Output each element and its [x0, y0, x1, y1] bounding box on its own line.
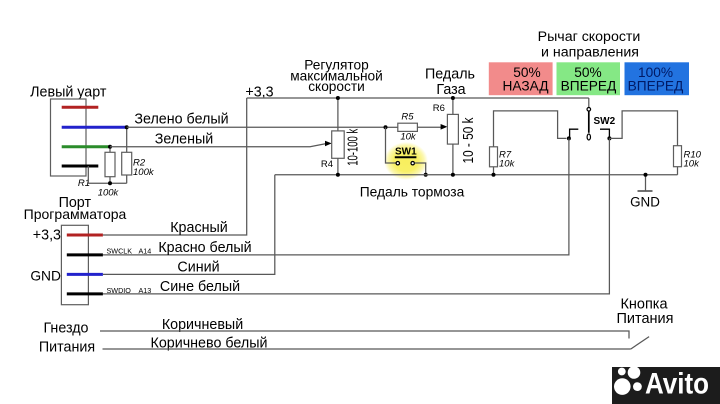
svg-text:Программатора: Программатора [24, 206, 127, 222]
svg-text:Газа: Газа [436, 82, 465, 98]
svg-text:SW2: SW2 [594, 116, 616, 127]
svg-text:GND: GND [30, 268, 61, 283]
svg-text:R4: R4 [321, 159, 333, 170]
svg-text:Зелено белый: Зелено белый [134, 112, 228, 128]
svg-text:Рычаг скорости: Рычаг скорости [538, 29, 641, 45]
svg-text:R5: R5 [401, 112, 414, 123]
svg-text:Питания: Питания [39, 340, 95, 356]
svg-text:ВПЕРЕД: ВПЕРЕД [561, 79, 617, 94]
svg-text:Avito: Avito [645, 368, 709, 401]
svg-text:скорости: скорости [308, 79, 365, 94]
svg-text:10k: 10k [400, 132, 417, 143]
svg-text:+3,3: +3,3 [33, 228, 61, 244]
svg-text:Сине белый: Сине белый [160, 279, 240, 295]
svg-text:НАЗАД: НАЗАД [503, 79, 550, 94]
svg-text:ВПЕРЕД: ВПЕРЕД [628, 79, 684, 94]
svg-text:Красно белый: Красно белый [158, 240, 251, 256]
svg-text:Синий: Синий [177, 260, 219, 276]
svg-text:Питания: Питания [616, 311, 673, 327]
svg-text:10k: 10k [684, 159, 701, 170]
svg-text:R6: R6 [433, 103, 445, 114]
svg-text:10k: 10k [499, 159, 516, 170]
svg-text:10-100 k: 10-100 k [345, 128, 362, 165]
svg-text:100k: 100k [98, 188, 120, 199]
svg-text:Левый уарт: Левый уарт [30, 85, 107, 101]
svg-text:10 - 50 k: 10 - 50 k [460, 117, 477, 163]
svg-text:GND: GND [630, 195, 660, 210]
svg-text:Педаль: Педаль [425, 67, 475, 83]
svg-text:SW1: SW1 [395, 147, 417, 158]
svg-text:SWCLKA14: SWCLKA14 [107, 247, 152, 256]
svg-text:100k: 100k [133, 167, 155, 178]
svg-text:Красный: Красный [170, 220, 228, 236]
svg-text:и направления: и направления [541, 45, 639, 61]
svg-text:SWDIOA13: SWDIOA13 [107, 286, 152, 295]
svg-text:Педаль тормоза: Педаль тормоза [360, 185, 465, 200]
svg-text:Зеленый: Зеленый [155, 132, 214, 148]
svg-text:Гнездо: Гнездо [43, 321, 88, 337]
